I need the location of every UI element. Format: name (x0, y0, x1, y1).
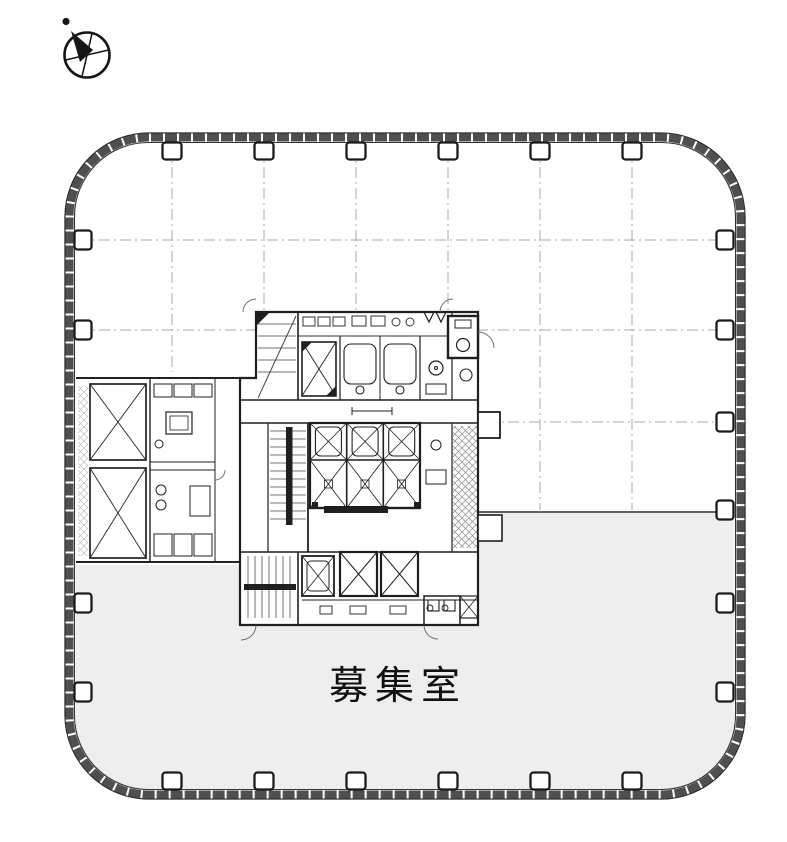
column (717, 413, 734, 432)
floor-plan-page: 募集室 (0, 0, 787, 842)
column (163, 773, 182, 790)
column (255, 143, 274, 160)
column (717, 683, 734, 702)
column (623, 773, 642, 790)
entry-vestibule (448, 316, 478, 358)
column (347, 143, 366, 160)
column (623, 143, 642, 160)
column (439, 143, 458, 160)
floor-plan: 募集室 (0, 0, 787, 842)
column (717, 231, 734, 250)
column (75, 594, 92, 613)
column (717, 321, 734, 340)
available-room-label: 募集室 (329, 664, 467, 709)
column (75, 683, 92, 702)
column (439, 773, 458, 790)
column (717, 594, 734, 613)
column (531, 773, 550, 790)
column (163, 143, 182, 160)
column (717, 501, 734, 520)
annex-block (76, 372, 240, 565)
core-block (240, 299, 502, 640)
column (75, 231, 92, 250)
compass-north-icon (62, 18, 109, 78)
column (531, 143, 550, 160)
column (255, 773, 274, 790)
column (75, 321, 92, 340)
column (347, 773, 366, 790)
